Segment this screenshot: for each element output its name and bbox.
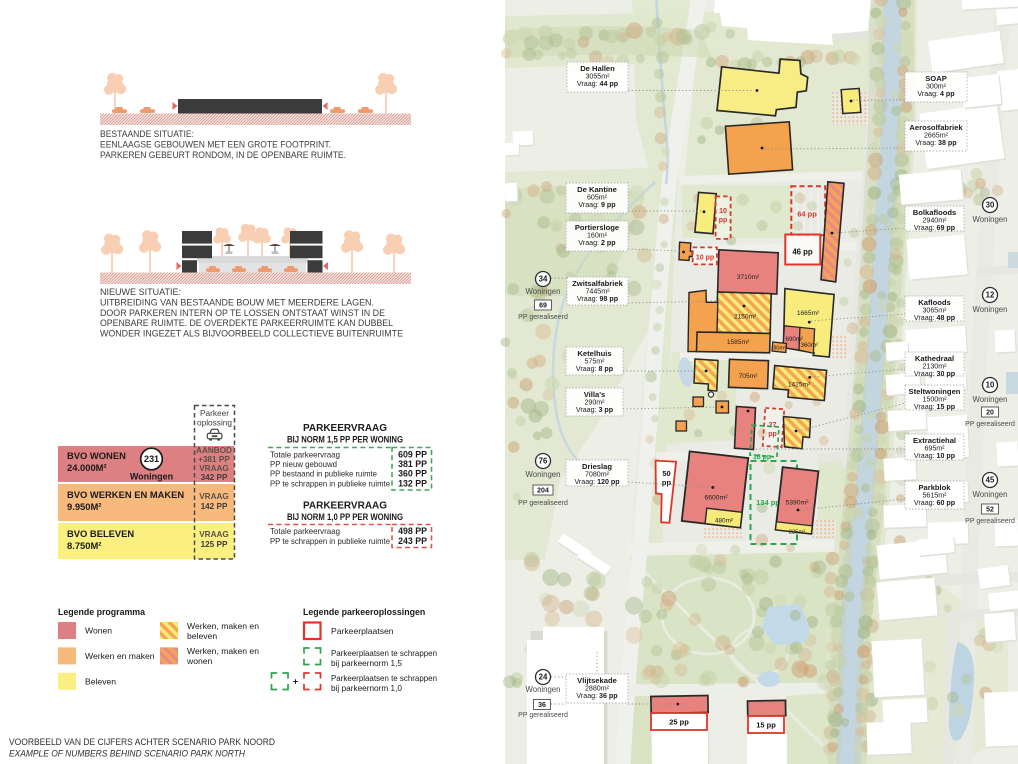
- svg-text:50: 50: [662, 469, 670, 478]
- svg-text:134 pp: 134 pp: [756, 498, 780, 507]
- svg-text:pp: pp: [768, 431, 777, 438]
- svg-text:609 PP: 609 PP: [398, 450, 427, 460]
- svg-text:6600m²: 6600m²: [704, 495, 728, 502]
- svg-text:BIJ NORM 1,0 PP PER WONING: BIJ NORM 1,0 PP PER WONING: [287, 511, 403, 522]
- svg-text:OPENBARE RUIMTE. DE OVERDEKTE: OPENBARE RUIMTE. DE OVERDEKTE PARKEERRUI…: [100, 318, 393, 328]
- svg-text:PP te schrappen in publieke ru: PP te schrappen in publieke ruimte: [270, 536, 390, 546]
- svg-text:BIJ NORM 1,5 PP PER WONING: BIJ NORM 1,5 PP PER WONING: [287, 434, 403, 445]
- svg-text:WONDER INGEZET ALS BIJVOORBEEL: WONDER INGEZET ALS BIJVOORBEELD COLLECTI…: [100, 329, 403, 339]
- svg-text:360m²: 360m²: [801, 342, 819, 349]
- svg-text:3710m²: 3710m²: [737, 274, 760, 281]
- svg-text:Woningen: Woningen: [973, 215, 1008, 224]
- svg-text:Woningen: Woningen: [526, 685, 561, 694]
- svg-text:20: 20: [986, 410, 994, 417]
- svg-text:+: +: [293, 677, 298, 687]
- svg-text:243 PP: 243 PP: [398, 536, 427, 546]
- svg-text:Vraag: 15 pp: Vraag: 15 pp: [914, 403, 956, 411]
- svg-text:PP bestaand in publieke ruimte: PP bestaand in publieke ruimte: [270, 469, 377, 479]
- svg-text:Vraag: 10 pp: Vraag: 10 pp: [914, 452, 956, 460]
- svg-text:PARKEERVRAAG: PARKEERVRAAG: [303, 501, 387, 512]
- svg-text:18 pp: 18 pp: [753, 454, 771, 461]
- svg-text:NIEUWE SITUATIE:: NIEUWE SITUATIE:: [100, 287, 181, 297]
- svg-text:PP gerealiseerd: PP gerealiseerd: [965, 518, 1015, 525]
- svg-text:Vraag: 3 pp: Vraag: 3 pp: [576, 406, 614, 414]
- svg-text:76: 76: [539, 457, 548, 466]
- svg-text:Parkeerplaatsen: Parkeerplaatsen: [331, 626, 394, 636]
- svg-text:705m²: 705m²: [739, 373, 758, 380]
- svg-text:bij parkeernorm 1,0: bij parkeernorm 1,0: [331, 683, 402, 693]
- svg-text:46 pp: 46 pp: [792, 248, 813, 257]
- svg-text:Totale parkeervraag: Totale parkeervraag: [270, 526, 340, 536]
- svg-text:Totale parkeervraag: Totale parkeervraag: [270, 450, 340, 460]
- svg-text:45: 45: [986, 476, 995, 485]
- svg-text:VRAAG: VRAAG: [199, 492, 229, 501]
- svg-text:Vraag: 44 pp: Vraag: 44 pp: [577, 80, 619, 88]
- svg-text:142 PP: 142 PP: [201, 502, 228, 511]
- svg-text:+381 PP: +381 PP: [198, 455, 230, 464]
- svg-text:Woningen: Woningen: [130, 472, 173, 482]
- svg-text:DOOR PARKEREN INTERN OP TE LOS: DOOR PARKEREN INTERN OP TE LOSSEN ONTSTA…: [100, 308, 385, 318]
- svg-text:Werken, maken en: Werken, maken en: [187, 621, 259, 631]
- svg-text:Werken en maken: Werken en maken: [85, 651, 155, 661]
- svg-text:Vraag: 4 pp: Vraag: 4 pp: [917, 90, 955, 98]
- svg-text:27: 27: [769, 422, 777, 429]
- svg-text:beleven: beleven: [187, 631, 217, 641]
- svg-text:BESTAANDE SITUATIE:: BESTAANDE SITUATIE:: [100, 129, 194, 139]
- svg-text:12: 12: [986, 291, 995, 300]
- svg-text:Legende programma: Legende programma: [58, 607, 145, 617]
- svg-text:Woningen: Woningen: [526, 470, 561, 479]
- svg-text:5390m²: 5390m²: [785, 500, 809, 507]
- svg-text:pp: pp: [662, 478, 672, 487]
- svg-text:Vraag: 9 pp: Vraag: 9 pp: [578, 201, 616, 209]
- svg-text:Wonen: Wonen: [85, 626, 112, 636]
- svg-text:52: 52: [986, 507, 994, 514]
- svg-text:10 pp: 10 pp: [696, 255, 714, 262]
- svg-text:VRAAG: VRAAG: [199, 530, 229, 539]
- svg-text:24.000M²: 24.000M²: [67, 462, 107, 473]
- svg-text:10: 10: [719, 208, 727, 215]
- svg-text:1585m²: 1585m²: [727, 339, 750, 346]
- svg-text:360 PP: 360 PP: [398, 469, 427, 479]
- svg-text:EENLAAGSE GEBOUWEN MET EEN GRO: EENLAAGSE GEBOUWEN MET EEN GROTE FOOTPRI…: [100, 139, 331, 149]
- svg-text:Vraag: 2 pp: Vraag: 2 pp: [578, 239, 616, 247]
- svg-text:PARKEREN GEBEURT RONDOM, IN DE: PARKEREN GEBEURT RONDOM, IN DE OPENBARE …: [100, 150, 346, 160]
- svg-text:PARKEERVRAAG: PARKEERVRAAG: [303, 423, 387, 434]
- svg-text:BVO WONEN: BVO WONEN: [67, 450, 126, 461]
- svg-text:480m²: 480m²: [715, 518, 733, 525]
- svg-text:Vraag: 60 pp: Vraag: 60 pp: [914, 499, 956, 507]
- svg-text:BVO WERKEN EN MAKEN: BVO WERKEN EN MAKEN: [67, 489, 184, 500]
- svg-text:PP gerealiseerd: PP gerealiseerd: [518, 314, 568, 321]
- svg-text:204: 204: [537, 488, 549, 495]
- svg-text:15 pp: 15 pp: [756, 721, 776, 730]
- svg-text:80m²: 80m²: [773, 346, 786, 352]
- svg-text:AANBOD: AANBOD: [196, 446, 232, 455]
- svg-text:VOORBEELD VAN DE CIJFERS ACHTE: VOORBEELD VAN DE CIJFERS ACHTER SCENARIO…: [9, 736, 275, 747]
- svg-text:Woningen: Woningen: [973, 490, 1008, 499]
- svg-text:24: 24: [539, 673, 548, 682]
- svg-text:9.950M²: 9.950M²: [67, 501, 101, 512]
- svg-text:1665m²: 1665m²: [797, 310, 820, 317]
- svg-text:34: 34: [539, 275, 548, 284]
- svg-text:Vraag: 120 pp: Vraag: 120 pp: [574, 478, 620, 486]
- svg-text:Vraag: 8 pp: Vraag: 8 pp: [576, 365, 614, 373]
- svg-text:Vraag: 30 pp: Vraag: 30 pp: [914, 370, 956, 378]
- svg-text:Woningen: Woningen: [526, 287, 561, 296]
- svg-text:Woningen: Woningen: [973, 305, 1008, 314]
- svg-text:PP gerealiseerd: PP gerealiseerd: [518, 500, 568, 507]
- svg-text:2150m²: 2150m²: [734, 314, 757, 321]
- svg-text:25 pp: 25 pp: [669, 718, 689, 727]
- svg-text:225m²: 225m²: [789, 530, 806, 536]
- svg-text:PP gerealiseerd: PP gerealiseerd: [965, 421, 1015, 428]
- svg-text:Parkeer: Parkeer: [200, 408, 229, 418]
- svg-text:pp: pp: [719, 217, 728, 224]
- svg-text:231: 231: [144, 454, 159, 464]
- svg-text:36: 36: [538, 702, 546, 709]
- svg-text:125 PP: 125 PP: [201, 540, 228, 549]
- svg-text:1425m²: 1425m²: [788, 382, 811, 389]
- svg-text:PP te schrappen in publieke ru: PP te schrappen in publieke ruimte: [270, 478, 390, 488]
- svg-text:498 PP: 498 PP: [398, 526, 427, 536]
- svg-text:Beleven: Beleven: [85, 676, 116, 686]
- svg-text:64 pp: 64 pp: [797, 210, 817, 219]
- svg-text:342 PP: 342 PP: [201, 473, 228, 482]
- svg-text:10: 10: [986, 381, 995, 390]
- svg-text:Vraag: 48 pp: Vraag: 48 pp: [914, 314, 956, 322]
- svg-text:132 PP: 132 PP: [398, 478, 427, 488]
- svg-text:Vraag: 69 pp: Vraag: 69 pp: [914, 224, 956, 232]
- svg-text:bij parkeernorm 1,5: bij parkeernorm 1,5: [331, 658, 402, 668]
- svg-text:69: 69: [539, 303, 547, 310]
- svg-text:oplossing: oplossing: [197, 418, 232, 428]
- svg-text:VRAAG: VRAAG: [199, 464, 229, 473]
- svg-text:BVO BELEVEN: BVO BELEVEN: [67, 528, 134, 539]
- svg-text:Parkeerplaatsen te schrappen: Parkeerplaatsen te schrappen: [331, 673, 437, 683]
- svg-text:PP nieuw gebouwd: PP nieuw gebouwd: [270, 459, 337, 469]
- svg-text:Vraag: 38 pp: Vraag: 38 pp: [915, 139, 957, 147]
- svg-text:Legende parkeeroplossingen: Legende parkeeroplossingen: [303, 607, 425, 617]
- svg-text:PP gerealiseerd: PP gerealiseerd: [518, 712, 568, 719]
- svg-text:30: 30: [986, 201, 995, 210]
- svg-text:wonen: wonen: [186, 656, 213, 666]
- svg-text:Werken, maken en: Werken, maken en: [187, 646, 259, 656]
- svg-text:Vraag: 36 pp: Vraag: 36 pp: [576, 692, 618, 700]
- svg-text:Woningen: Woningen: [973, 395, 1008, 404]
- svg-text:UITBREIDING VAN BESTAANDE BOUW: UITBREIDING VAN BESTAANDE BOUW MET MEERD…: [100, 297, 374, 307]
- svg-text:381 PP: 381 PP: [398, 459, 427, 469]
- svg-text:8.750M²: 8.750M²: [67, 540, 101, 551]
- svg-text:Vraag: 98 pp: Vraag: 98 pp: [577, 295, 619, 303]
- svg-text:Parkeerplaatsen te schrappen: Parkeerplaatsen te schrappen: [331, 648, 437, 658]
- svg-text:EXAMPLE OF NUMBERS BEHIND SCEN: EXAMPLE OF NUMBERS BEHIND SCENARIO PARK …: [9, 748, 245, 759]
